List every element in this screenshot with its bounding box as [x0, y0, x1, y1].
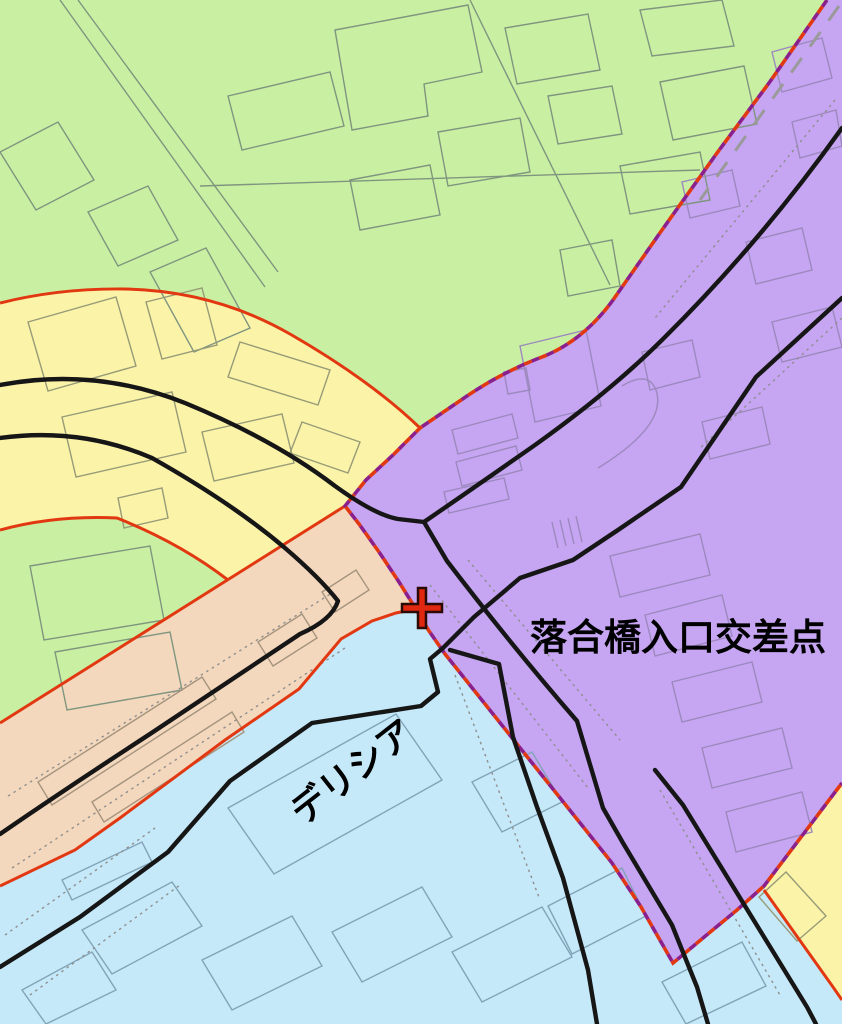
map-canvas[interactable]: 落合橋入口交差点 デリシア [0, 0, 842, 1024]
zoning-map: 落合橋入口交差点 デリシア [0, 0, 842, 1024]
intersection-label: 落合橋入口交差点 [530, 616, 826, 658]
